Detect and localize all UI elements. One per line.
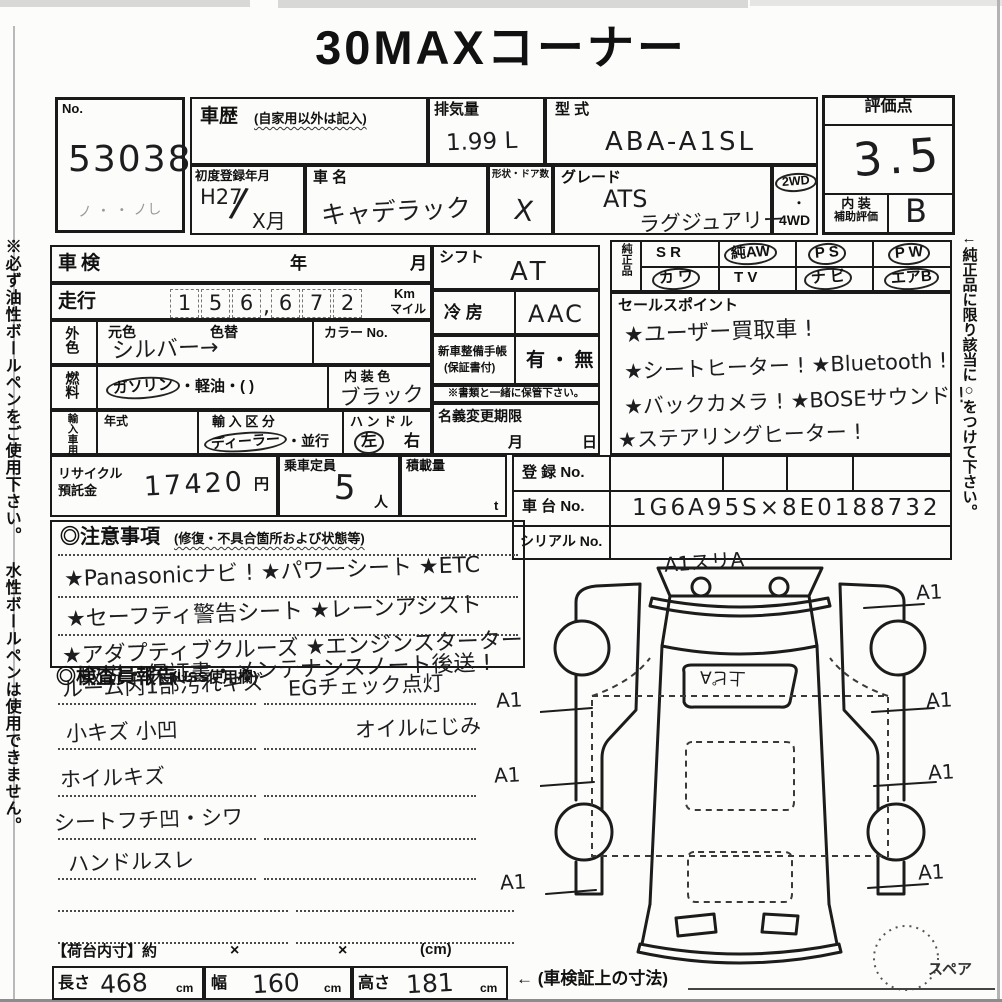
dotted-line xyxy=(58,838,256,840)
dotted-line xyxy=(58,878,256,880)
import-division-value: ディーラー・並行 xyxy=(204,432,329,452)
interior-score-value-cell: B xyxy=(889,193,954,232)
mileage-unit-mile: マイル xyxy=(390,303,426,316)
recycle-label2: 預託金 xyxy=(58,484,97,498)
capacity-label: 乗車定員 xyxy=(284,459,336,473)
diagram-baseline xyxy=(688,988,995,990)
spare-label: スペア xyxy=(928,962,972,979)
car-damage-diagram xyxy=(540,550,992,998)
drive-2wd: 2WD xyxy=(774,172,817,194)
import-parallel: ・並行 xyxy=(287,433,329,449)
divider xyxy=(342,412,344,457)
width-cell: 幅 160 cm xyxy=(204,966,352,1000)
first-registration-month: X月 xyxy=(252,211,286,231)
divider xyxy=(514,292,516,337)
inspector-finding: ルーム内1部汚れキズ xyxy=(62,672,264,700)
capacity-value: 5 xyxy=(333,471,356,506)
diagram-top-annotation: A1スリA xyxy=(663,549,744,575)
divider xyxy=(327,367,329,412)
spare-tire-circle xyxy=(874,926,938,990)
drive-dot: ・ xyxy=(793,197,805,210)
model-code-value: ABA-A1SL xyxy=(605,129,756,155)
divider xyxy=(609,457,611,558)
mileage-digit: 2 xyxy=(333,289,362,318)
genuine-item-airbag-circled: エアB xyxy=(883,266,939,291)
lot-number-label: No. xyxy=(62,102,83,116)
scan-streak xyxy=(750,0,1002,6)
sales-line: ★シートヒーター ! ★Bluetooth ! xyxy=(624,350,948,382)
book-note-cell: ※書類と一緒に保管下さい。 xyxy=(432,385,600,403)
interior-score-label-cell: 内 装 補助評価 xyxy=(825,193,889,232)
grade-line2: ラグジュアリー xyxy=(639,209,785,235)
dotted-line xyxy=(264,748,476,750)
sales-points-box: セールスポイント ★ユーザー買取車 ! ★シートヒーター ! ★Bluetoot… xyxy=(610,292,952,455)
genuine-item-navi-circled: ナ ビ xyxy=(803,266,853,291)
scan-edge xyxy=(997,0,1000,1002)
dotted-line xyxy=(296,942,514,944)
history-note: (自家用以外は記入) xyxy=(254,112,367,126)
divider xyxy=(722,457,724,490)
service-book-value: 有 ・ 無 xyxy=(526,351,594,372)
cargo-unit: (cm) xyxy=(420,942,452,959)
height-value: 181 xyxy=(405,970,454,997)
lot-number-box: No. 53038 ノ ・ ・ ノし xyxy=(55,97,185,233)
damage-code-a1: A1 xyxy=(499,871,526,892)
service-book-label1: 新車整備手帳 xyxy=(438,346,507,359)
color-no-label: カラー No. xyxy=(324,326,388,340)
ac-cell: 冷 房 AAC xyxy=(432,290,600,335)
damage-code-a1: A1 xyxy=(927,761,954,782)
lot-number-value: 53038 xyxy=(68,142,193,178)
handle-left-circled: 左 xyxy=(353,430,385,455)
serial-no-label: シリアル No. xyxy=(520,534,602,549)
divider xyxy=(96,412,98,457)
inspector-finding: シートフチ凹・シワ xyxy=(54,807,244,835)
first-registration-label: 初度登録年月 xyxy=(195,170,270,184)
sales-line: ★ステアリングヒーター ! xyxy=(618,422,863,452)
damage-code-a1: A1 xyxy=(915,581,942,602)
mileage-digit: 1 xyxy=(170,289,199,318)
fuel-row: 燃料 ガソリン・軽油・( ) 内 装 色 ブラック xyxy=(50,365,432,410)
grade-cell: グレード ATS ラグジュアリー xyxy=(553,165,772,235)
sales-points-label: セールスポイント xyxy=(618,298,738,315)
dotted-line xyxy=(58,795,256,797)
score-value: 3.5 xyxy=(852,131,946,183)
displacement-label: 排気量 xyxy=(434,102,479,119)
cautions-note: (修復・不具合箇所および状態等) xyxy=(174,532,365,546)
model-code-cell: 型 式 ABA-A1SL xyxy=(545,97,818,165)
length-unit: cm xyxy=(176,982,193,995)
fuel-gasoline-circled: ガソリン xyxy=(105,374,180,401)
width-label: 幅 xyxy=(211,975,227,993)
length-cell: 長さ 468 cm xyxy=(52,966,204,1000)
dotted-line xyxy=(58,748,256,750)
cargo-x2: × xyxy=(338,942,347,960)
cargo-x1: × xyxy=(230,942,239,960)
drive-cell: 2WD ・ 4WD xyxy=(772,165,818,235)
grade-line1: ATS xyxy=(603,187,647,211)
transfer-cell: 名義変更期限 月 日 xyxy=(432,403,600,455)
height-label: 高さ xyxy=(358,975,390,993)
left-margin-note: ※必ず油性ボールペンをご使用下さい。 水性ボールペンは使用できません。 xyxy=(2,238,20,838)
genuine-item-sr: S R xyxy=(656,245,681,262)
load-cell: 積載量 t xyxy=(400,455,507,517)
scan-streak xyxy=(0,0,250,7)
dotted-line xyxy=(296,910,514,912)
displacement-cell: 排気量 1.99 L xyxy=(428,97,545,165)
interior-label-2: 補助評価 xyxy=(825,211,887,223)
mileage-label: 走行 xyxy=(58,292,96,313)
displacement-value: 1.99 L xyxy=(446,130,518,155)
shape-doors-value: X xyxy=(512,196,535,226)
dotted-line xyxy=(264,703,476,705)
mileage-unit-km: Km xyxy=(394,287,415,301)
mileage-digit: 6 xyxy=(271,289,300,318)
handle-right: 右 xyxy=(404,433,420,451)
import-dealer-circled: ディーラー xyxy=(203,429,287,455)
genuine-item-pw-circled: P W xyxy=(887,242,930,266)
inspector-finding: 小キズ 小凹 xyxy=(66,720,178,745)
exterior-color-value: シルバー→ xyxy=(112,337,219,363)
genuine-item-aw-circled: 純AW xyxy=(723,241,778,266)
genuine-item-leather-circled: カ ワ xyxy=(651,266,701,291)
interior-score-value: B xyxy=(905,192,927,230)
auction-sheet: 30MAXコーナー ※必ず油性ボールペンをご使用下さい。 水性ボールペンは使用で… xyxy=(0,0,1002,1002)
divider xyxy=(852,457,854,490)
divider xyxy=(718,242,720,290)
divider xyxy=(96,367,98,412)
load-unit: t xyxy=(494,499,498,513)
mileage-digit: 5 xyxy=(201,289,230,318)
ac-label: 冷 房 xyxy=(444,304,483,323)
recycle-yen: 円 xyxy=(254,477,269,494)
mileage-digit: 6 xyxy=(232,289,261,318)
service-book-cell: 新車整備手帳 (保証書付) 有 ・ 無 xyxy=(432,335,600,385)
interior-color-label: 内 装 色 xyxy=(344,370,390,384)
import-year-label: 年式 xyxy=(104,415,128,428)
shift-value: AT xyxy=(510,259,550,285)
diagram-glass-annotation: 上ピA xyxy=(700,667,746,686)
damage-code-a1: A1 xyxy=(495,689,522,710)
exterior-side-label: 外色 xyxy=(64,326,79,366)
recycle-value: 17420 xyxy=(143,468,245,500)
width-unit: cm xyxy=(324,982,341,995)
sales-line: ★ユーザー買取車 ! xyxy=(624,319,814,348)
dotted-line xyxy=(264,878,476,880)
score-label: 評価点 xyxy=(864,98,912,115)
mileage-digits: 1 5 6 , 6 7 2 xyxy=(170,288,364,318)
genuine-item-ps-circled: P S xyxy=(807,242,846,266)
shape-doors-cell: 形状・ドア数 X xyxy=(488,165,553,235)
divider xyxy=(795,242,797,290)
inspector-finding: ハンドルスレ xyxy=(68,850,195,875)
length-value: 468 xyxy=(99,970,148,997)
height-unit: cm xyxy=(480,982,497,995)
first-registration-cell: 初度登録年月 H27 / X月 xyxy=(190,165,305,235)
capacity-cell: 乗車定員 5 人 xyxy=(278,455,400,517)
mileage-comma: , xyxy=(263,296,270,318)
exterior-color-row: 外色 元色 色替 シルバー→ カラー No. xyxy=(50,320,432,365)
recycle-fee-cell: リサイクル 預託金 17420 円 xyxy=(50,455,278,517)
damage-code-a1: A1 xyxy=(925,689,952,710)
transfer-label: 名義変更期限 xyxy=(438,409,522,424)
fuel-value: ガソリン・軽油・( ) xyxy=(106,377,254,399)
inspector-finding: オイルにじみ xyxy=(355,716,482,741)
sales-line: ★バックカメラ ! ★BOSEサウンド ! xyxy=(624,385,966,418)
divider xyxy=(312,322,314,367)
import-side-label: 輸入車用 xyxy=(66,413,78,457)
recycle-label1: リサイクル xyxy=(58,467,122,481)
handle-label: ハ ン ド ル xyxy=(350,415,413,429)
import-row: 輸入車用 年式 輸 入 区 分 ディーラー・並行 ハ ン ド ル 左 右 xyxy=(50,410,432,455)
cautions-title: ◎注意事項 xyxy=(60,526,160,548)
service-book-label2: (保証書付) xyxy=(444,362,495,374)
divider xyxy=(96,322,98,367)
cautions-box: ◎注意事項 (修復・不具合箇所および状態等) ★Panasonicナビ ! ★パ… xyxy=(50,520,525,668)
shaken-year: 年 xyxy=(290,255,307,274)
shift-label: シフト xyxy=(439,250,484,267)
genuine-label: 純正品 xyxy=(620,243,632,291)
divider xyxy=(786,457,788,490)
damage-code-a1: A1 xyxy=(917,861,944,882)
dotted-line xyxy=(58,703,256,705)
fuel-side-label: 燃料 xyxy=(64,371,79,411)
shaken-row: 車検 年 月 xyxy=(50,245,432,283)
history-label: 車歴 xyxy=(200,107,238,128)
fuel-rest: ・軽油・( ) xyxy=(180,378,254,395)
divider xyxy=(197,412,199,457)
dotted-line xyxy=(58,910,288,912)
reg-no-label: 登 録 No. xyxy=(522,465,585,482)
interior-color-value: ブラック xyxy=(340,384,425,409)
cargo-label: 【荷台内寸】約 xyxy=(52,944,157,961)
divider xyxy=(514,337,516,387)
book-note: ※書類と一緒に保管下さい。 xyxy=(434,388,598,400)
scan-streak xyxy=(278,0,748,8)
import-division-label: 輸 入 区 分 xyxy=(212,415,275,429)
chassis-no-label: 車 台 No. xyxy=(522,499,585,516)
drive-4wd: 4WD xyxy=(779,213,810,228)
capacity-unit: 人 xyxy=(374,495,388,510)
genuine-item-tv: T V xyxy=(734,270,757,287)
inspector-finding: ホイルキズ xyxy=(60,766,166,791)
registration-table: 登 録 No. 車 台 No. 1G6A95S×8E0188732 シリアル N… xyxy=(512,455,952,560)
lot-number-scribble: ノ ・ ・ ノし xyxy=(78,203,162,220)
shift-cell: シフト AT xyxy=(432,245,600,290)
genuine-parts-grid: 純正品 S R 純AW P S P W カ ワ T V ナ ビ エアB xyxy=(610,240,952,292)
inspector-report: ◎検査員報告 (USS使用欄) ルーム内1部汚れキズ EGチェック点灯 小キズ … xyxy=(50,664,540,964)
car-name-cell: 車 名 キャデラック xyxy=(305,165,488,235)
dotted-line xyxy=(264,795,476,797)
caution-line: ★セーフティ警告シート ★レーンアシスト xyxy=(66,595,482,631)
height-cell: 高さ 181 cm xyxy=(352,966,508,1000)
transfer-day: 日 xyxy=(582,435,597,452)
length-label: 長さ xyxy=(58,975,90,993)
divider xyxy=(514,525,950,527)
inspector-finding: EGチェック点灯 xyxy=(288,673,444,699)
car-name-label: 車 名 xyxy=(313,170,347,187)
divider xyxy=(872,242,874,290)
load-label: 積載量 xyxy=(406,459,445,473)
caution-line: ★Panasonicナビ ! ★パワーシート ★ETC xyxy=(64,555,481,592)
dotted-line xyxy=(264,838,476,840)
cargo-note: ← (車検証上の寸法) xyxy=(516,970,668,989)
score-header: 評価点 xyxy=(825,98,952,126)
interior-label-1: 内 装 xyxy=(825,197,887,211)
divider xyxy=(514,490,950,492)
score-box: 評価点 3.5 内 装 補助評価 B xyxy=(822,95,955,235)
ac-value: AAC xyxy=(528,302,584,326)
damage-code-a1: A1 xyxy=(493,764,520,785)
width-value: 160 xyxy=(251,970,300,997)
shape-doors-label: 形状・ドア数 xyxy=(492,170,552,180)
transfer-month: 月 xyxy=(508,435,523,452)
page-title: 30MAXコーナー xyxy=(251,22,751,74)
mileage-digit: 7 xyxy=(302,289,331,318)
shaken-month: 月 xyxy=(410,255,427,274)
history-cell: 車歴 (自家用以外は記入) xyxy=(190,97,428,165)
model-code-label: 型 式 xyxy=(555,102,589,119)
car-name-value: キャデラック xyxy=(320,195,471,228)
shaken-label: 車検 xyxy=(58,254,104,275)
mileage-row: 走行 1 5 6 , 6 7 2 Km マイル xyxy=(50,283,432,320)
chassis-no-value: 1G6A95S×8E0188732 xyxy=(632,497,941,520)
